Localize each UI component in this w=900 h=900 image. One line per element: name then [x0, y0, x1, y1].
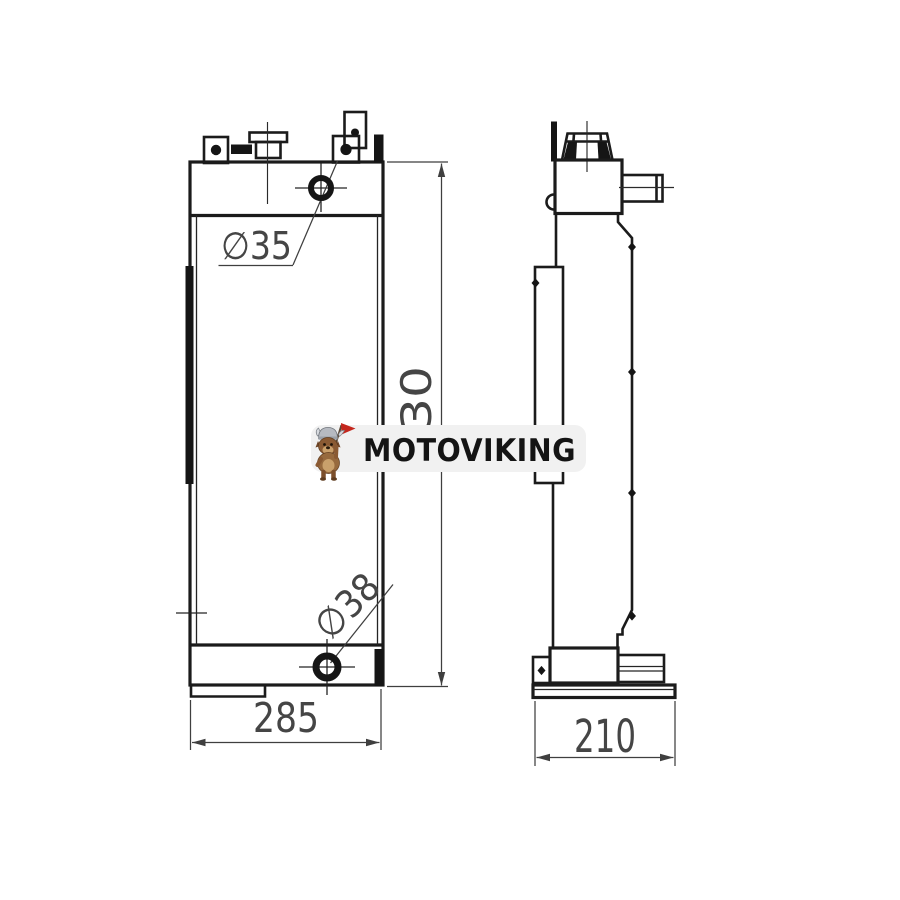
foot	[331, 477, 337, 481]
port-top-label: ∅35	[221, 224, 292, 268]
dim-height-730: 730	[387, 162, 448, 687]
mount-bracket-left	[204, 137, 228, 163]
bolt-hole-icon	[211, 145, 221, 155]
side-right-profile	[618, 214, 633, 649]
top-stub	[231, 145, 252, 155]
port-bottom-label: ∅38	[305, 564, 388, 647]
mount-bracket-right-tall	[345, 112, 367, 148]
weld-mark-icon	[538, 666, 546, 675]
radiator-drawing: 730 285 210 ∅35 ∅38	[0, 0, 900, 900]
bolt-hole-icon	[340, 144, 351, 155]
technical-drawing-page: 730 285 210 ∅35 ∅38	[0, 0, 900, 900]
weld-mark-icon	[532, 278, 540, 287]
brand-watermark: MOTOVIKING	[311, 423, 586, 481]
side-filler-cap	[562, 121, 613, 172]
top-bracket-plate	[551, 122, 557, 162]
side-bottom-tank	[550, 648, 618, 683]
dim-depth-210: 210	[535, 701, 675, 766]
callout-port-bottom: ∅38	[305, 564, 388, 647]
side-top-tank	[555, 160, 622, 214]
inlet-port-top	[293, 161, 347, 265]
side-view	[532, 121, 676, 698]
right-side-channel-end	[375, 649, 384, 686]
dim-depth-label: 210	[574, 710, 636, 763]
side-inlet-pipe	[619, 175, 674, 202]
weld-mark-icon	[628, 488, 636, 497]
right-end-plate	[374, 135, 384, 163]
top-fittings	[204, 112, 384, 204]
side-outlet-pipe	[618, 655, 664, 682]
callout-port-top: ∅35	[219, 224, 294, 268]
weld-mark-icon	[628, 367, 636, 376]
left-edge-boss	[547, 195, 555, 210]
eye	[330, 443, 333, 446]
nose	[326, 446, 330, 449]
foot	[320, 477, 326, 481]
dim-width-285: 285	[191, 689, 382, 750]
dim-width-label: 285	[253, 694, 319, 742]
left-side-channel	[186, 266, 194, 484]
side-base-plate	[533, 685, 675, 698]
watermark-brand-text: MOTOVIKING	[363, 433, 576, 469]
eye	[323, 443, 326, 446]
arm	[336, 447, 337, 457]
weld-mark-icon	[628, 242, 636, 251]
side-foot-bracket	[533, 657, 550, 683]
